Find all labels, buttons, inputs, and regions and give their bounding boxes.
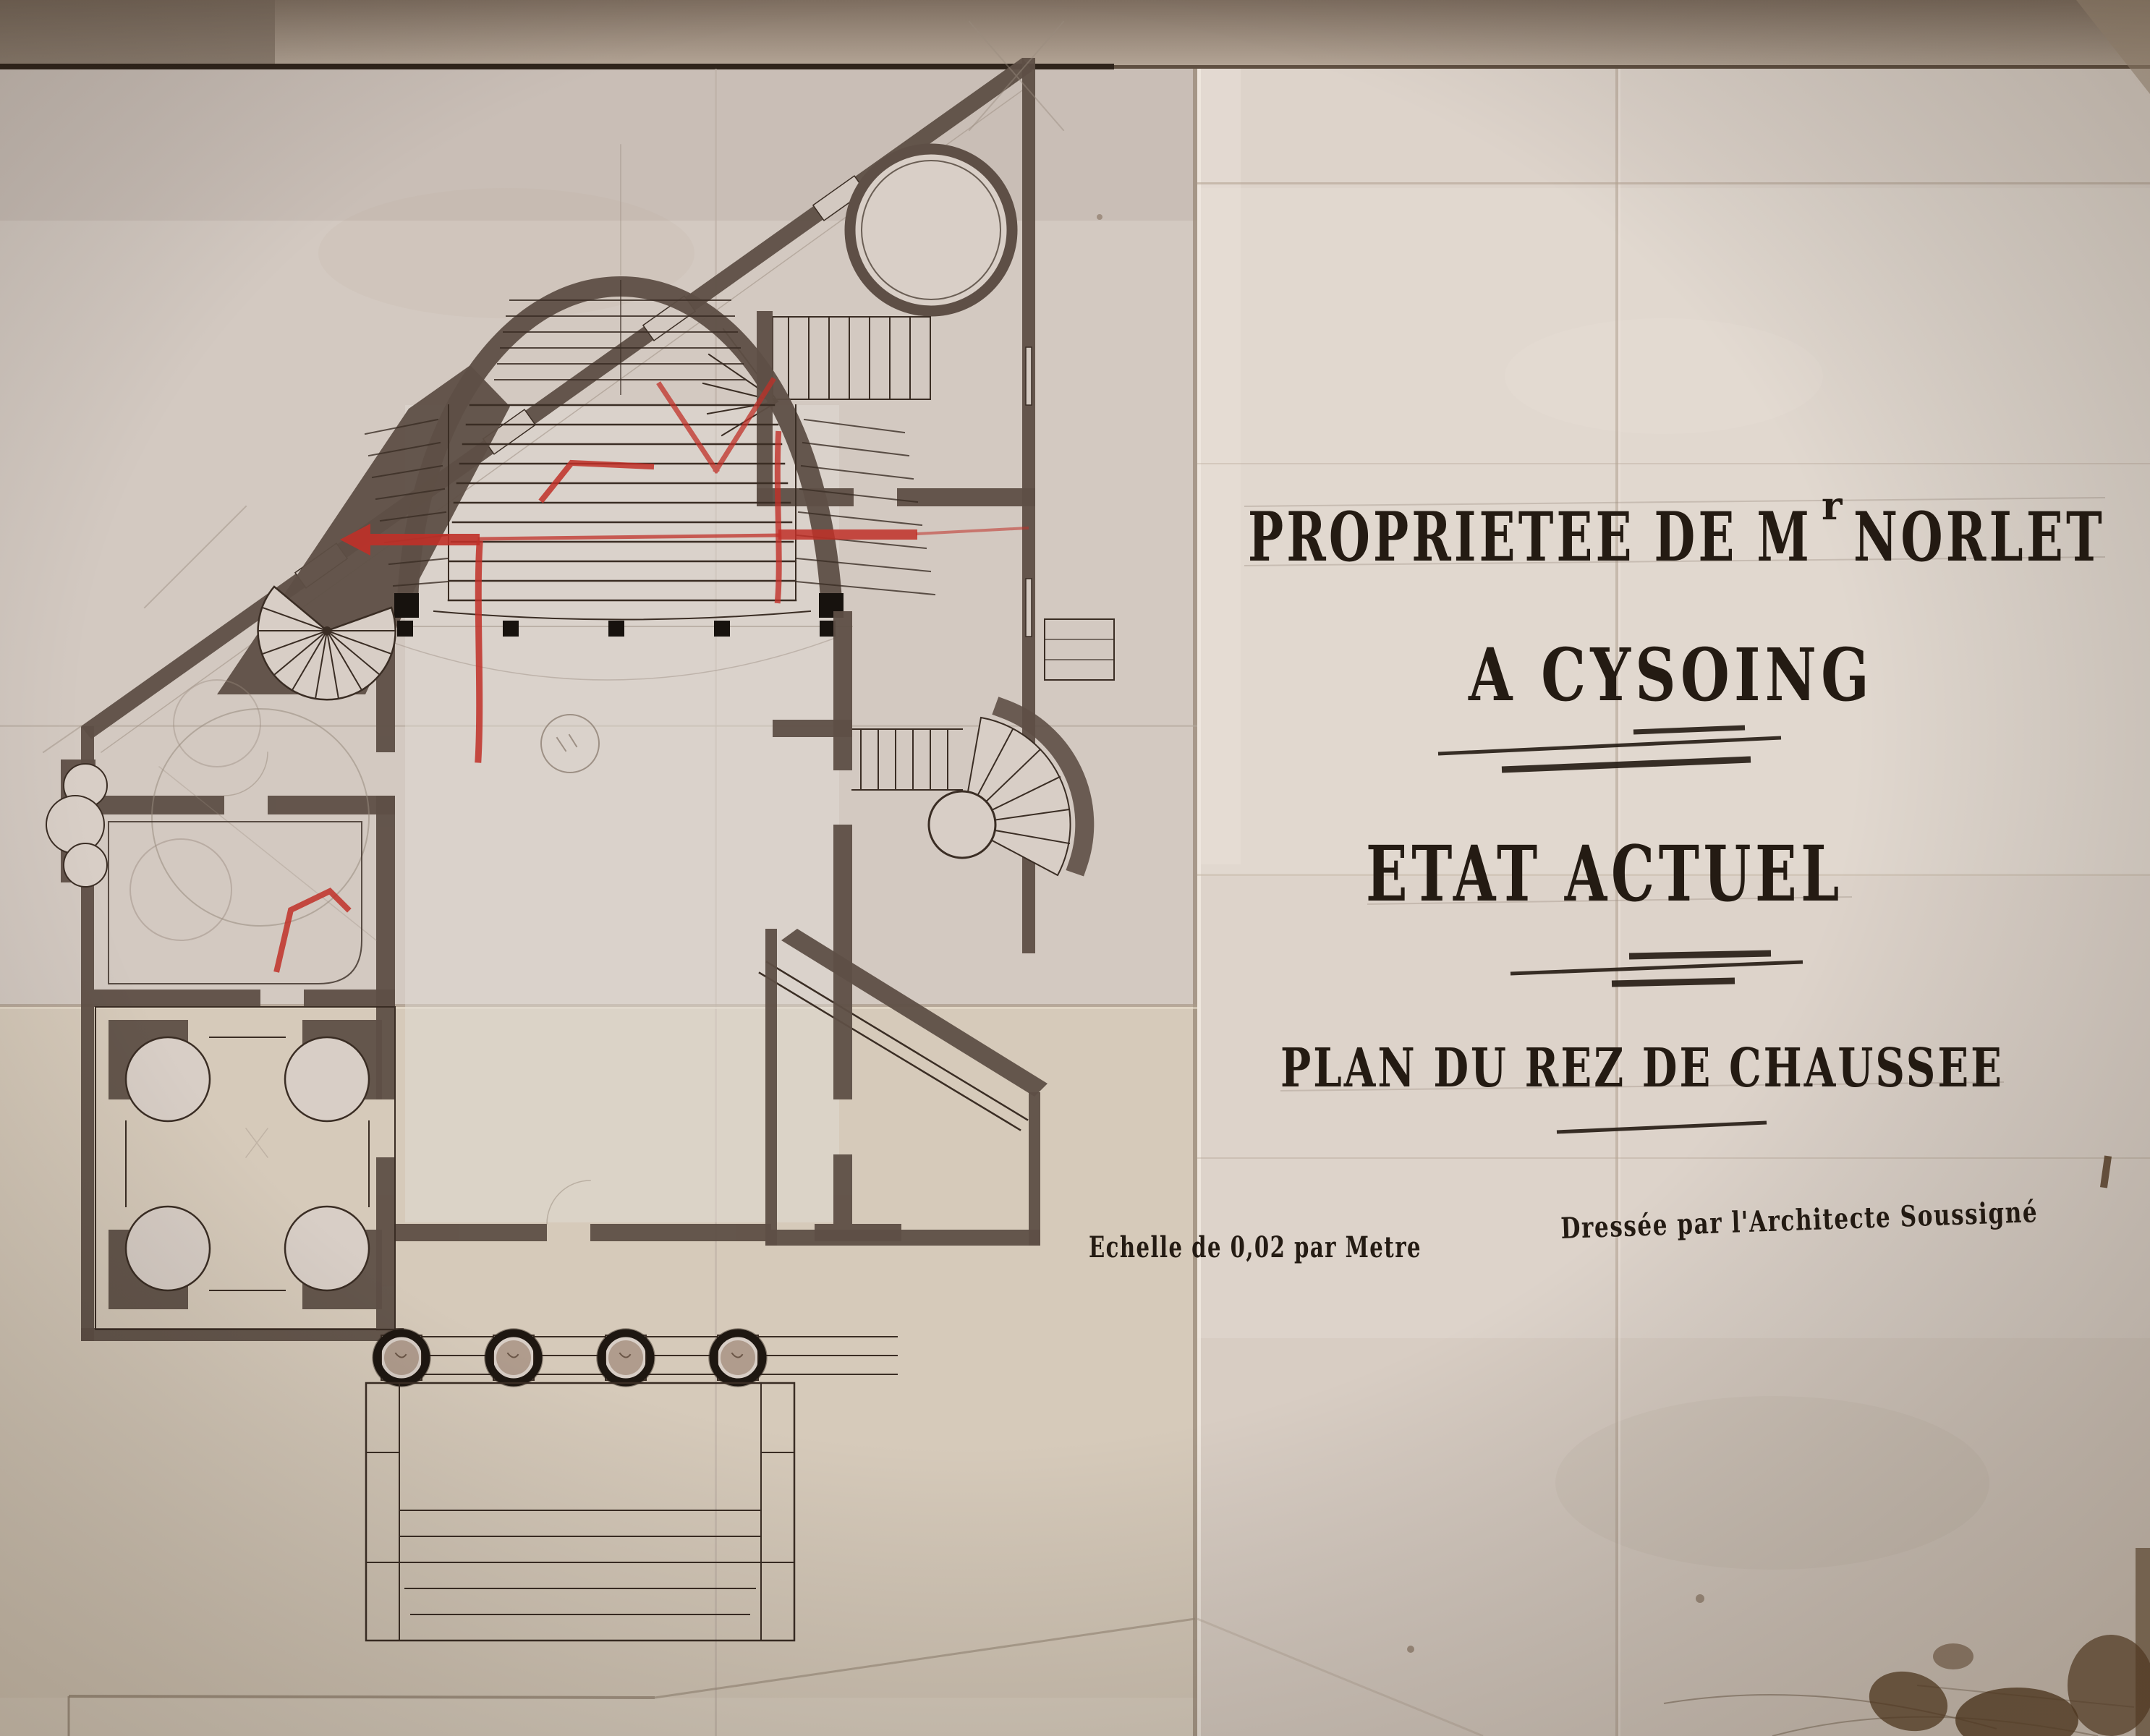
drawing-sheet: PROPRIETEE DE M r NORLET A CYSOING ETAT … <box>0 0 2150 1736</box>
photo-vignette <box>0 0 2150 1736</box>
plan-photograph: PROPRIETEE DE M r NORLET A CYSOING ETAT … <box>0 0 2150 1736</box>
